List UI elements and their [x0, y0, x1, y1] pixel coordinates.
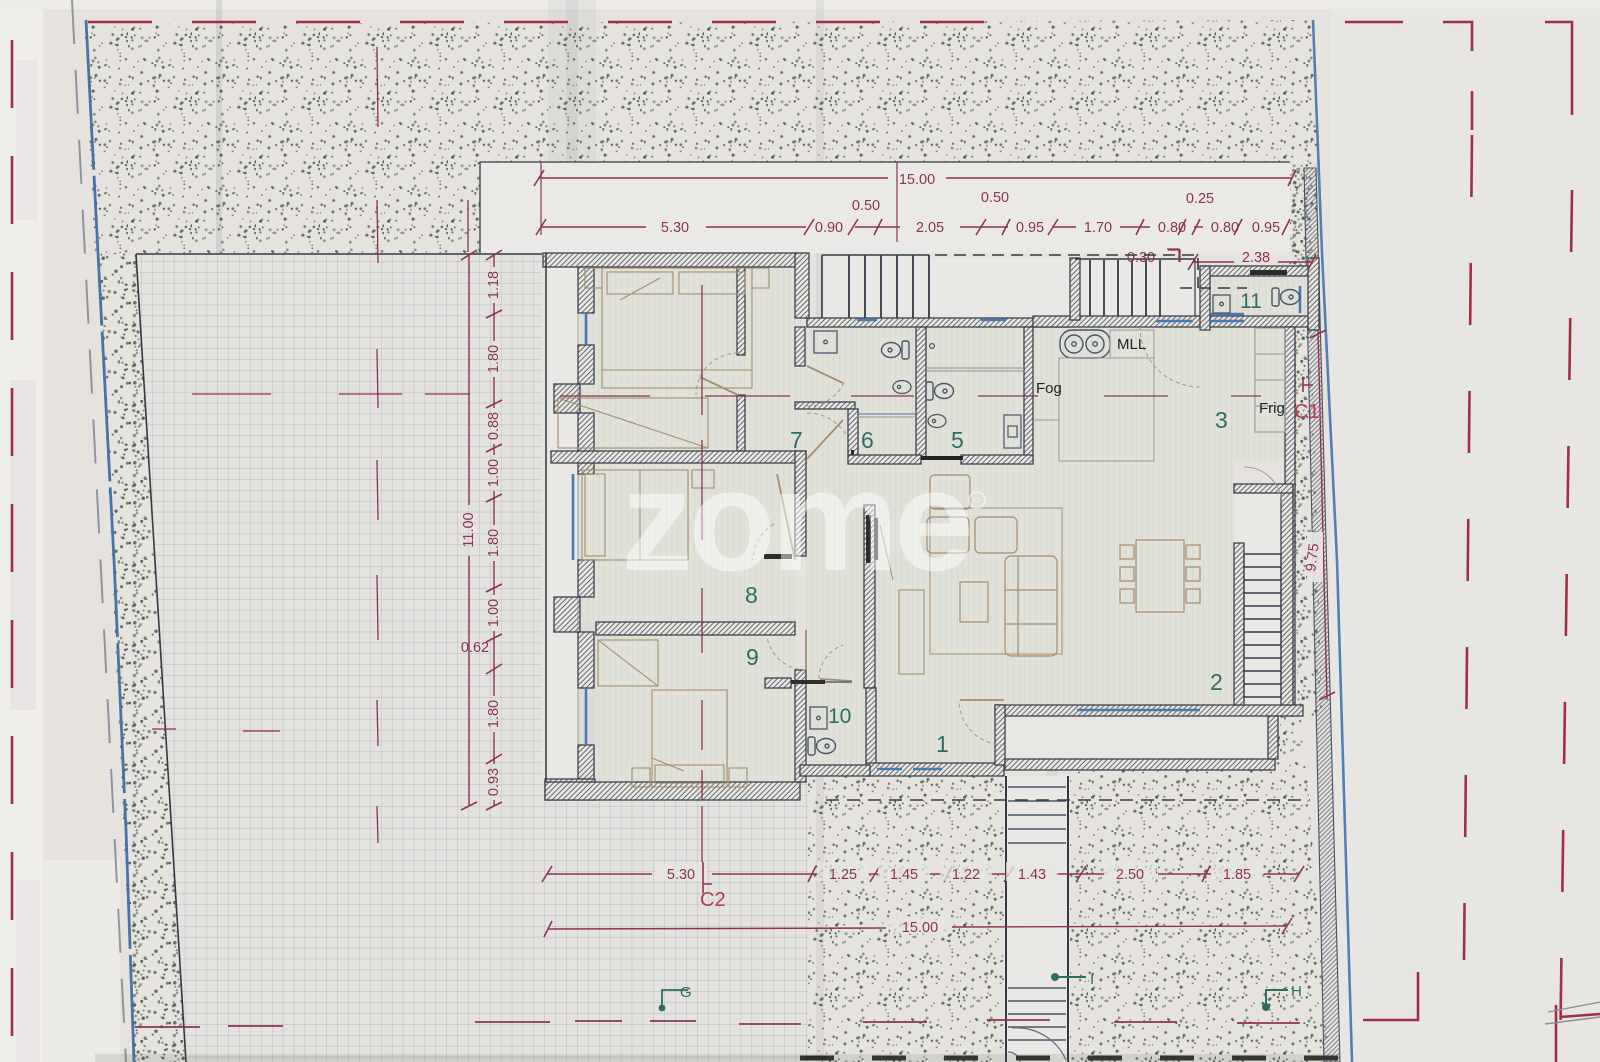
- svg-text:2.05: 2.05: [916, 220, 944, 236]
- svg-text:10: 10: [828, 705, 851, 728]
- svg-text:1: 1: [936, 731, 949, 757]
- svg-text:H: H: [1291, 983, 1302, 1000]
- svg-text:0.95: 0.95: [1016, 220, 1044, 236]
- svg-text:1.85: 1.85: [1223, 867, 1251, 883]
- svg-text:2: 2: [1210, 669, 1223, 695]
- svg-text:11: 11: [1240, 290, 1262, 313]
- svg-text:1.80: 1.80: [486, 700, 502, 728]
- svg-text:2.50: 2.50: [1116, 867, 1144, 883]
- svg-text:1.45: 1.45: [890, 867, 918, 883]
- svg-text:0.80: 0.80: [1211, 220, 1239, 236]
- svg-text:C1: C1: [1294, 401, 1320, 423]
- svg-text:0.90: 0.90: [815, 220, 843, 236]
- svg-text:0.95: 0.95: [1252, 220, 1280, 236]
- svg-text:1.25: 1.25: [829, 867, 857, 883]
- svg-text:0.93: 0.93: [486, 768, 502, 796]
- svg-text:2.38: 2.38: [1242, 250, 1270, 266]
- svg-text:0.25: 0.25: [1186, 191, 1214, 207]
- svg-text:15.00: 15.00: [899, 172, 935, 188]
- svg-text:0.62: 0.62: [461, 640, 489, 656]
- svg-text:I: I: [1090, 971, 1094, 988]
- svg-text:MLL: MLL: [1117, 336, 1146, 353]
- svg-text:3: 3: [1215, 407, 1228, 433]
- svg-text:G: G: [680, 984, 692, 1001]
- svg-text:0.80: 0.80: [1158, 220, 1186, 236]
- svg-text:1.00: 1.00: [486, 459, 502, 487]
- svg-text:Fog: Fog: [1036, 380, 1062, 397]
- svg-text:1.70: 1.70: [1084, 220, 1112, 236]
- svg-text:1.43: 1.43: [1018, 867, 1046, 883]
- svg-text:0.30: 0.30: [1127, 250, 1155, 266]
- svg-text:1.00: 1.00: [486, 599, 502, 627]
- svg-text:1.22: 1.22: [952, 867, 980, 883]
- svg-text:R: R: [973, 496, 981, 508]
- svg-text:0.88: 0.88: [486, 412, 502, 440]
- svg-text:1.18: 1.18: [486, 271, 502, 299]
- svg-text:1.80: 1.80: [486, 529, 502, 557]
- svg-text:5.30: 5.30: [661, 220, 689, 236]
- svg-text:C2: C2: [700, 889, 726, 911]
- svg-text:0.50: 0.50: [981, 190, 1009, 206]
- svg-text:0.50: 0.50: [852, 198, 880, 214]
- svg-text:11.00: 11.00: [461, 512, 477, 547]
- svg-text:9: 9: [746, 644, 759, 670]
- svg-text:1.80: 1.80: [486, 345, 502, 373]
- svg-text:5.30: 5.30: [667, 867, 695, 883]
- svg-text:zome: zome: [621, 440, 970, 601]
- svg-text:Frig: Frig: [1259, 400, 1285, 417]
- svg-text:15.00: 15.00: [902, 920, 938, 936]
- svg-text:9.75: 9.75: [1303, 543, 1322, 573]
